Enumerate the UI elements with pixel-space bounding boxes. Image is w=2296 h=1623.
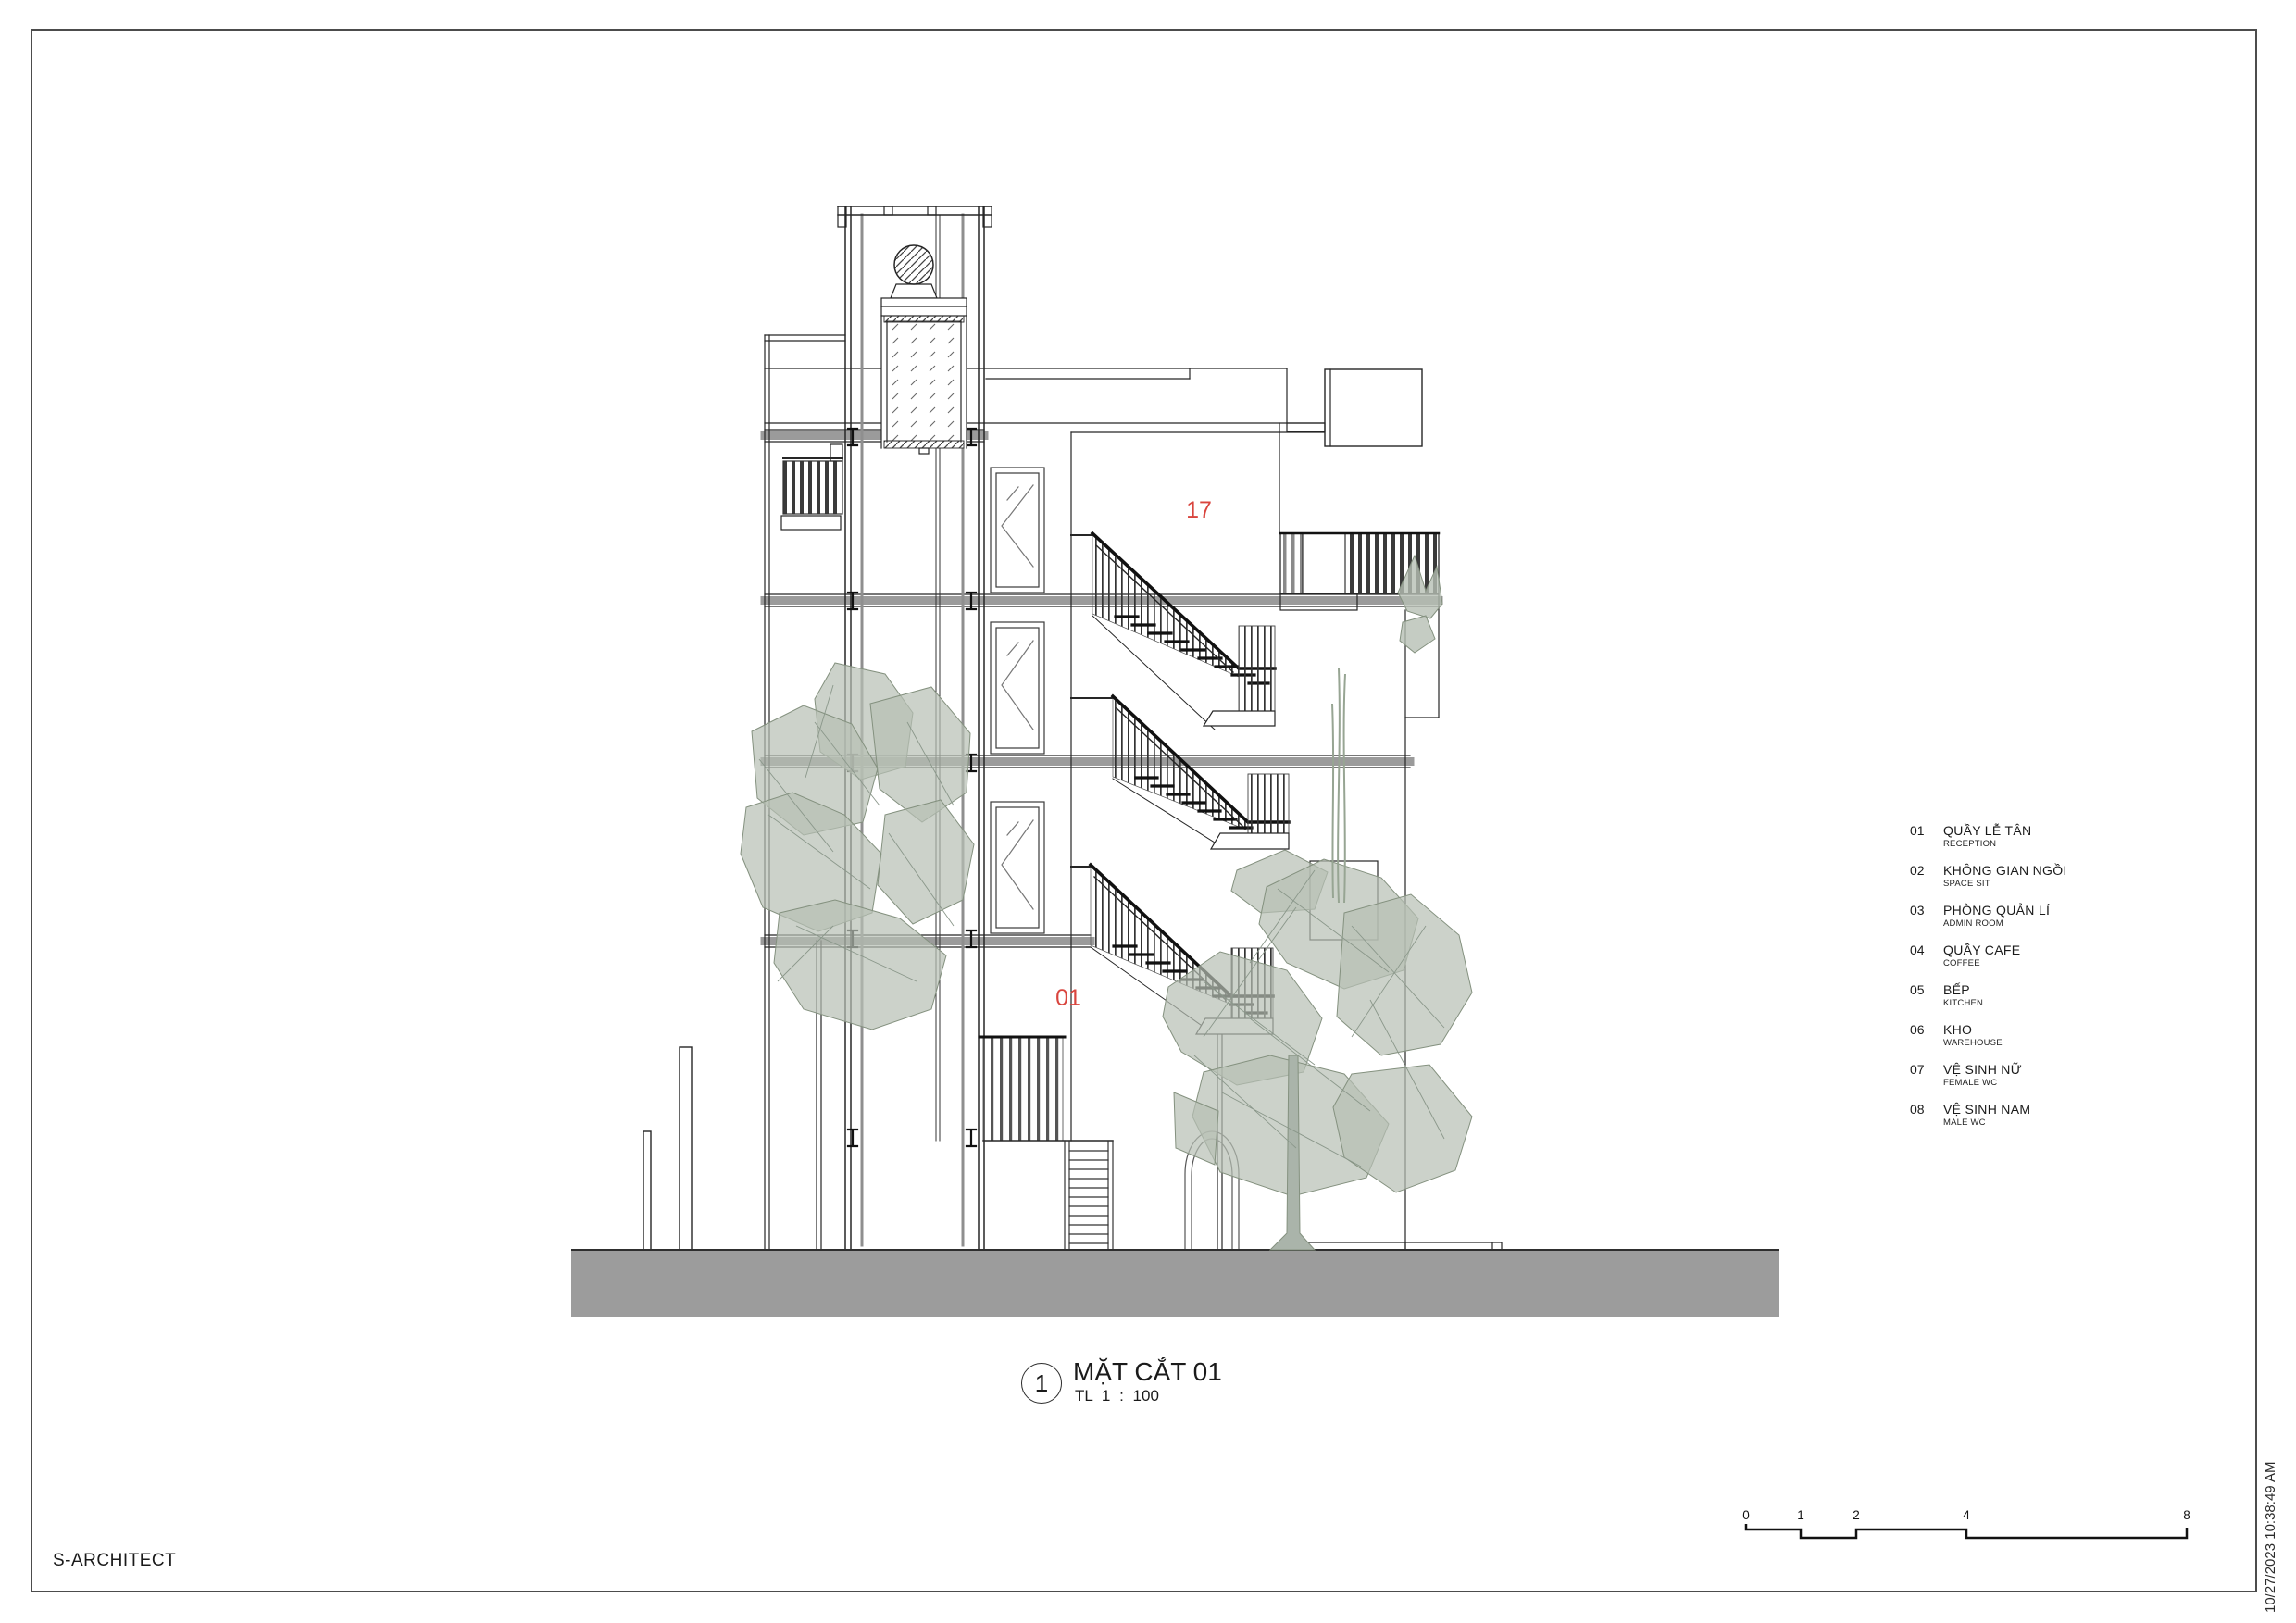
elevator-doors <box>991 468 1044 933</box>
legend-label-vi: PHÒNG QUẢN LÍ <box>1943 903 2050 918</box>
room-tag-17: 17 <box>1186 497 1212 523</box>
legend-number: 02 <box>1910 863 1943 889</box>
legend-label-vi: QUẦY LỄ TÂN <box>1943 823 2031 838</box>
legend-number: 07 <box>1910 1062 1943 1088</box>
tree-left <box>741 663 974 1030</box>
legend-number: 05 <box>1910 982 1943 1008</box>
legend-label-vi: QUẦY CAFE <box>1943 943 2020 957</box>
legend-item-07: 07 VỆ SINH NỮ FEMALE WC <box>1910 1062 2215 1088</box>
legend-label-en: WAREHOUSE <box>1943 1038 2003 1048</box>
legend-number: 08 <box>1910 1102 1943 1128</box>
view-scale: TL 1 : 100 <box>1075 1387 1159 1405</box>
site-walls <box>643 1047 692 1250</box>
view-number: 1 <box>1035 1369 1048 1398</box>
legend-item-02: 02 KHÔNG GIAN NGỒI SPACE SIT <box>1910 863 2215 889</box>
scale-tick-8: 8 <box>2183 1508 2190 1522</box>
legend-number: 03 <box>1910 903 1943 929</box>
legend-label-en: RECEPTION <box>1943 839 2031 849</box>
legend-label-vi: VỆ SINH NỮ <box>1943 1062 2022 1077</box>
legend-item-05: 05 BẾP KITCHEN <box>1910 982 2215 1008</box>
legend-number: 01 <box>1910 823 1943 849</box>
roof-room <box>1287 369 1422 446</box>
legend-item-01: 01 QUẦY LỄ TÂN RECEPTION <box>1910 823 2215 849</box>
legend-item-08: 08 VỆ SINH NAM MALE WC <box>1910 1102 2215 1128</box>
elevator-cab <box>881 298 967 454</box>
stair-flight-upper <box>1071 533 1275 730</box>
scale-tick-0: 0 <box>1742 1508 1750 1522</box>
tree-right <box>1163 850 1472 1250</box>
drawing-sheet: 17 01 0 1 2 4 8 01 QUẦY LỄ TÂN RECEPTION… <box>0 0 2296 1623</box>
legend-label-vi: VỆ SINH NAM <box>1943 1102 2030 1117</box>
legend-number: 06 <box>1910 1022 1943 1048</box>
legend-item-03: 03 PHÒNG QUẢN LÍ ADMIN ROOM <box>1910 903 2215 929</box>
legend-label-en: KITCHEN <box>1943 998 1983 1008</box>
scale-bar: 0 1 2 4 8 <box>1742 1508 2190 1538</box>
legend-label-en: FEMALE WC <box>1943 1078 2022 1088</box>
legend-label-en: ADMIN ROOM <box>1943 918 2050 929</box>
ground-hatch <box>571 1250 1779 1317</box>
room-tag-01: 01 <box>1055 985 1081 1011</box>
scale-tick-2: 2 <box>1853 1508 1860 1522</box>
legend-number: 04 <box>1910 943 1943 968</box>
print-timestamp: 10/27/2023 10:38:49 AM <box>2263 1462 2278 1613</box>
legend-label-vi: BẾP <box>1943 982 1983 997</box>
front-stair-ladder <box>1065 1141 1113 1250</box>
view-title: MẶT CẮT 01 <box>1073 1357 1222 1387</box>
louver-window-left <box>781 444 842 530</box>
legend-label-en: SPACE SIT <box>1943 879 2067 889</box>
ground-guard-railing <box>980 1037 1113 1141</box>
legend-item-06: 06 KHO WAREHOUSE <box>1910 1022 2215 1048</box>
legend-label-en: COFFEE <box>1943 958 2020 968</box>
firm-name: S-ARCHITECT <box>53 1551 176 1571</box>
right-platform <box>1305 1242 1502 1250</box>
scale-tick-1: 1 <box>1797 1508 1804 1522</box>
elevator-motor <box>891 245 937 298</box>
room-legend: 01 QUẦY LỄ TÂN RECEPTION 02 KHÔNG GIAN N… <box>1910 823 2215 1142</box>
view-number-bubble: 1 <box>1021 1363 1062 1404</box>
legend-item-04: 04 QUẦY CAFE COFFEE <box>1910 943 2215 968</box>
legend-label-vi: KHÔNG GIAN NGỒI <box>1943 863 2067 878</box>
legend-label-en: MALE WC <box>1943 1117 2030 1128</box>
legend-label-vi: KHO <box>1943 1022 2003 1037</box>
scale-tick-4: 4 <box>1963 1508 1970 1522</box>
